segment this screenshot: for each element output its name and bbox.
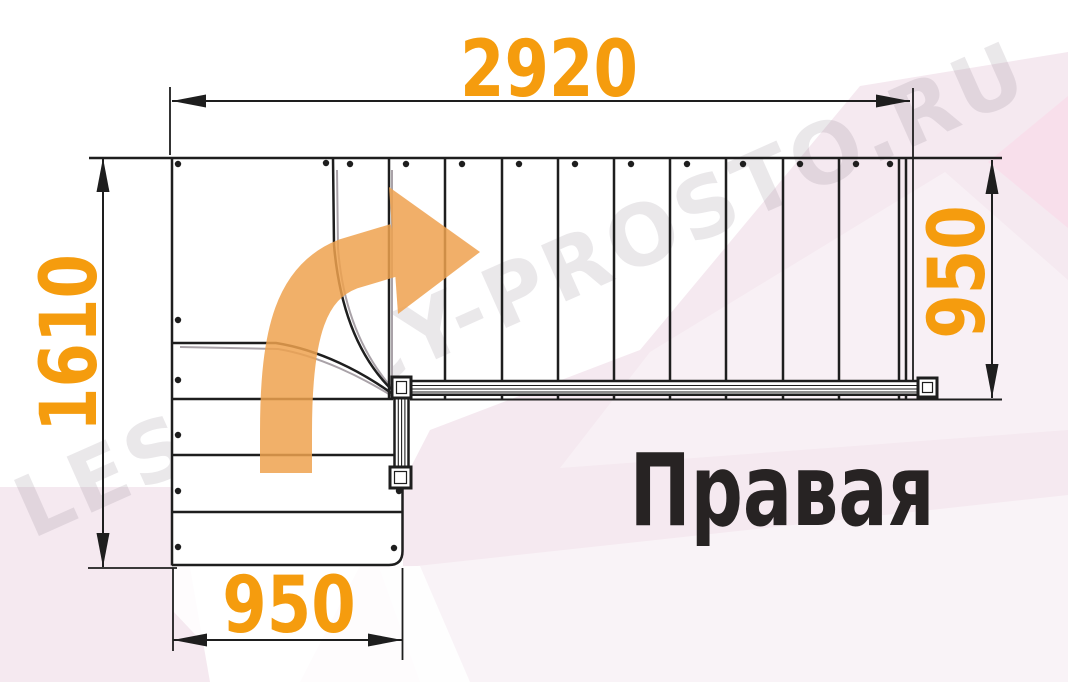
screw-dot: [175, 161, 181, 167]
plan-label: Правая: [630, 432, 935, 549]
screw-dot: [887, 161, 893, 167]
screw-dot: [516, 161, 522, 167]
rail-post-inner: [395, 472, 407, 484]
dimension-bottom-value: 950: [222, 560, 355, 651]
screw-dot: [175, 432, 181, 438]
screw-dot: [175, 377, 181, 383]
screw-dot: [684, 161, 690, 167]
screw-dot: [628, 161, 634, 167]
screw-dot: [572, 161, 578, 167]
screw-dot: [391, 545, 397, 551]
dimension-left-value: 1610: [24, 254, 115, 432]
dimension-right-value: 950: [912, 205, 1003, 338]
screw-dot: [459, 161, 465, 167]
rail-bar: [394, 397, 410, 467]
staircase-plan-svg: LESTNICY-PROSTO.RU: [0, 0, 1068, 682]
screw-dot: [347, 161, 353, 167]
screw-dot: [797, 161, 803, 167]
staircase-plan-page: LESTNICY-PROSTO.RU: [0, 0, 1068, 682]
dimension-top-value: 2920: [460, 24, 638, 115]
screw-dot: [396, 488, 402, 494]
screw-dot: [175, 488, 181, 494]
stringer-end-post-inner: [923, 383, 933, 393]
screw-dot: [853, 161, 859, 167]
screw-dot: [323, 160, 329, 166]
newel-post-inner: [397, 382, 407, 394]
stringer-bar: [410, 380, 918, 396]
screw-dot: [175, 317, 181, 323]
stringer-fill: [410, 380, 918, 396]
screw-dot: [403, 161, 409, 167]
screw-dot: [740, 161, 746, 167]
screw-dot: [175, 544, 181, 550]
